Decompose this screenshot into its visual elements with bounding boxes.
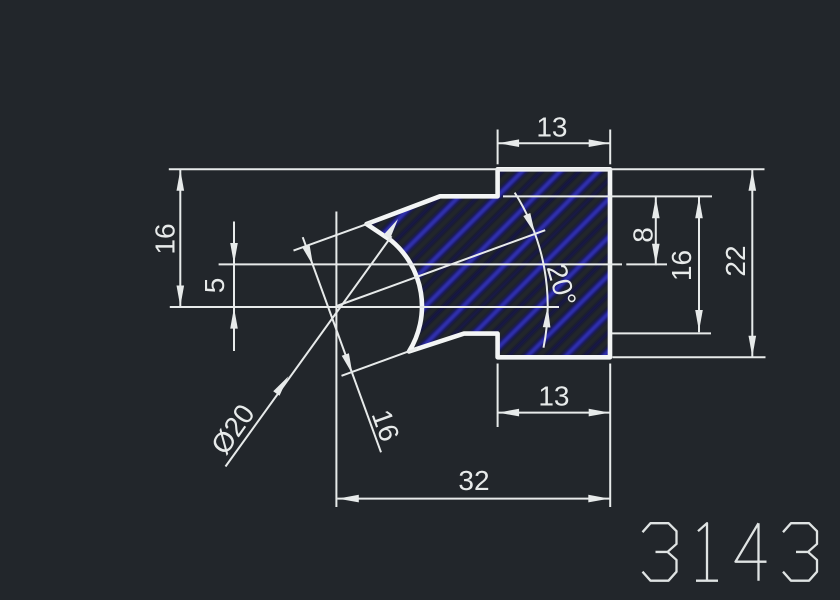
svg-text:13: 13 xyxy=(536,112,567,143)
svg-text:32: 32 xyxy=(458,465,489,496)
svg-text:16: 16 xyxy=(150,223,181,254)
svg-text:5: 5 xyxy=(199,278,230,294)
svg-text:16: 16 xyxy=(666,250,697,281)
svg-text:22: 22 xyxy=(720,245,751,276)
svg-text:8: 8 xyxy=(628,227,659,243)
svg-text:13: 13 xyxy=(538,380,569,411)
